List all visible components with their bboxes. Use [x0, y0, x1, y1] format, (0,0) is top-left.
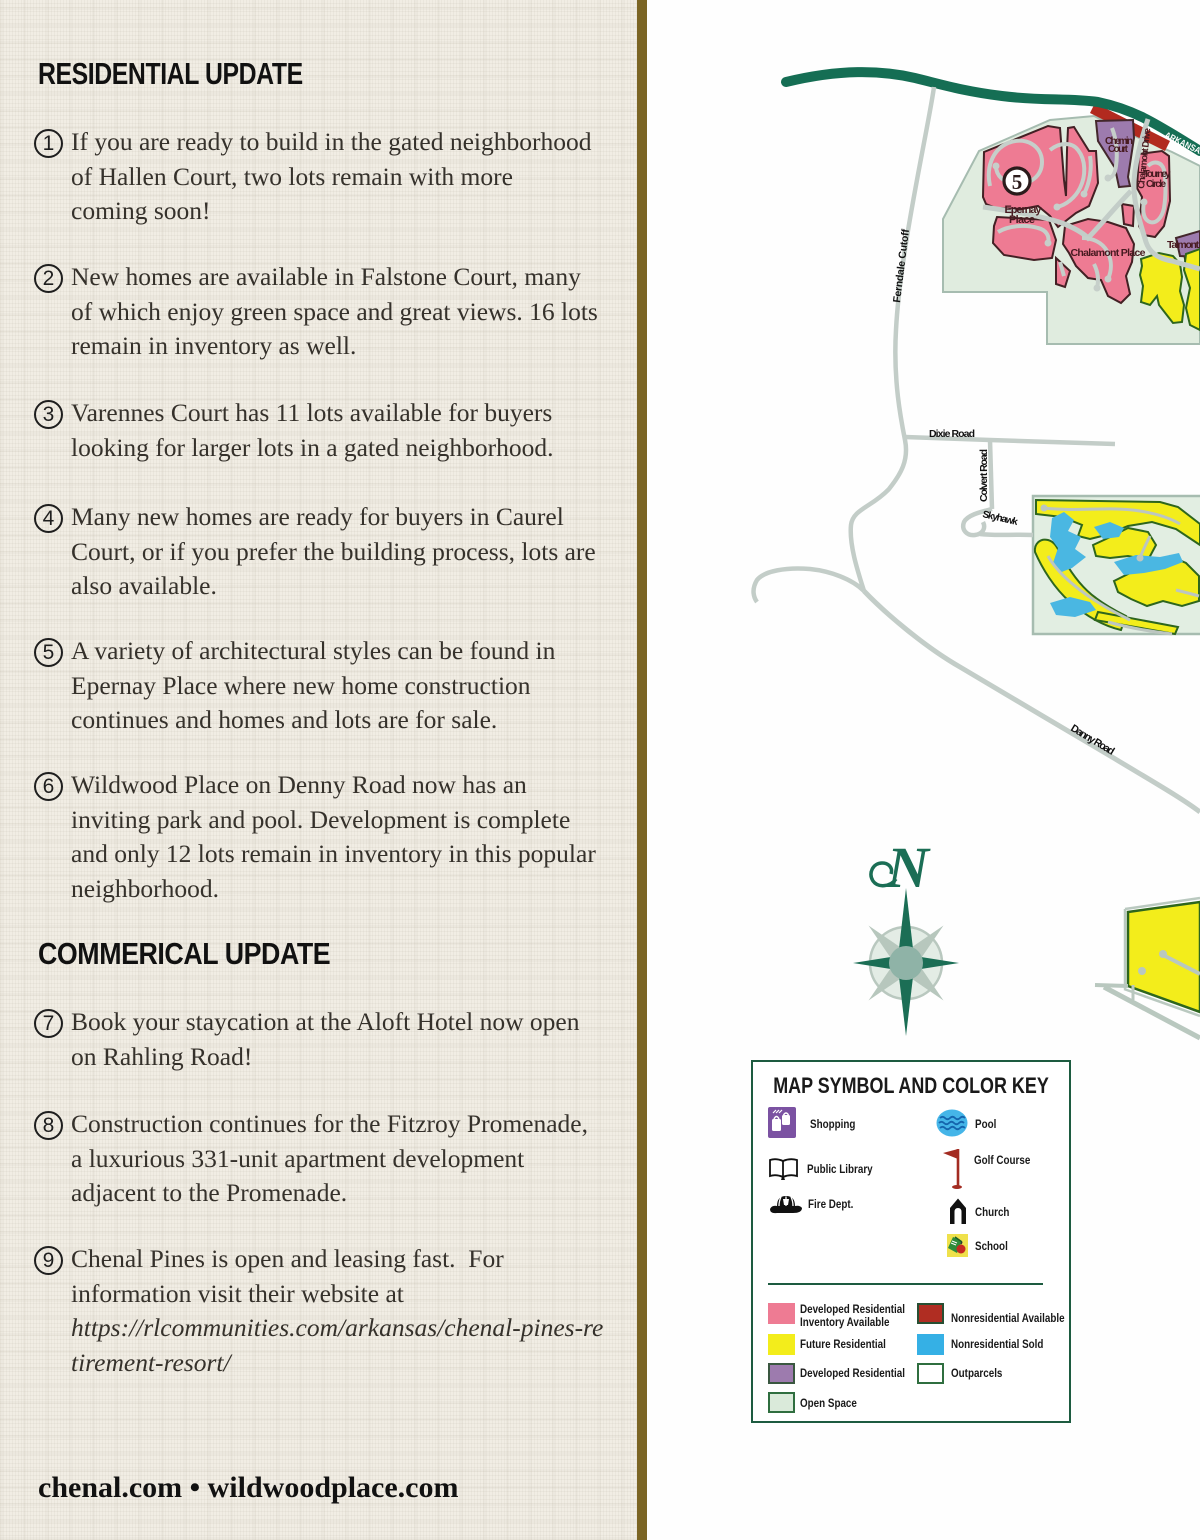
svg-text:Talmont R: Talmont R [1167, 239, 1200, 251]
svg-text:Chemin: Chemin [1105, 136, 1133, 147]
svg-text:Place: Place [1009, 214, 1035, 226]
svg-text:Circle: Circle [1146, 179, 1166, 190]
svg-text:Dixie Road: Dixie Road [929, 428, 975, 440]
svg-text:N: N [886, 835, 931, 900]
svg-text:Skyhawk: Skyhawk [981, 509, 1019, 528]
svg-text:Epernay: Epernay [1005, 204, 1043, 216]
svg-text:Chalamont Drive: Chalamont Drive [1136, 127, 1153, 189]
svg-text:Court: Court [1108, 144, 1129, 155]
svg-text:Colvert Road: Colvert Road [978, 449, 990, 502]
svg-text:Danny Road: Danny Road [1068, 722, 1116, 758]
svg-text:Tourney: Tourney [1144, 169, 1171, 180]
svg-text:Chalamont Place: Chalamont Place [1071, 247, 1146, 259]
svg-text:5: 5 [1012, 170, 1023, 194]
svg-text:Ferndale Cutoff: Ferndale Cutoff [891, 228, 912, 303]
svg-text:ARKANSAS: ARKANSAS [1163, 130, 1200, 158]
